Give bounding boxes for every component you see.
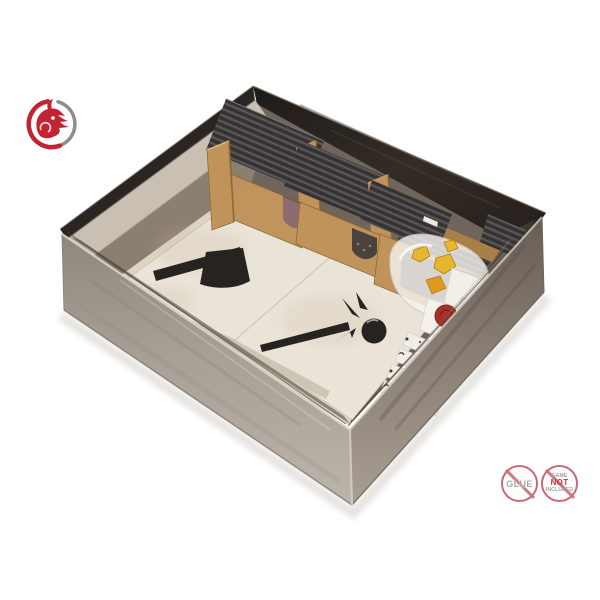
no-glue-badge-label: GLUE	[506, 479, 533, 489]
product-photo-canvas: GLUE GAME NOT INCLUDED	[0, 0, 600, 600]
gni-line3: INCLUDED	[546, 488, 573, 494]
insert-end-wall	[207, 141, 234, 230]
dragon-logo-icon	[24, 96, 80, 152]
dragon-eye	[51, 116, 55, 120]
no-glue-badge: GLUE	[501, 465, 538, 502]
game-box-product-photo	[0, 0, 600, 600]
game-not-included-badge: GAME NOT INCLUDED	[541, 465, 578, 502]
